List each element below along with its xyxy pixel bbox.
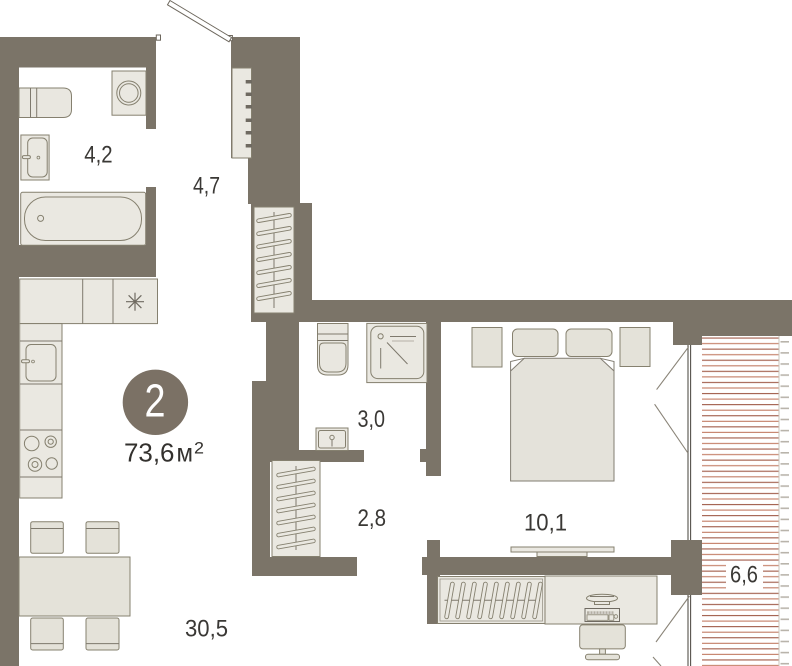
svg-text:2,8: 2,8	[358, 505, 387, 532]
svg-text:3,0: 3,0	[358, 406, 386, 433]
svg-text:6,6: 6,6	[730, 562, 758, 589]
svg-text:м: м	[177, 438, 194, 468]
svg-text:4,2: 4,2	[84, 142, 112, 169]
svg-text:10,1: 10,1	[524, 510, 567, 537]
svg-text:2: 2	[145, 375, 166, 427]
svg-text:2: 2	[194, 439, 204, 457]
svg-text:73,6: 73,6	[124, 440, 175, 468]
svg-text:4,7: 4,7	[193, 173, 220, 200]
svg-text:30,5: 30,5	[185, 616, 228, 643]
